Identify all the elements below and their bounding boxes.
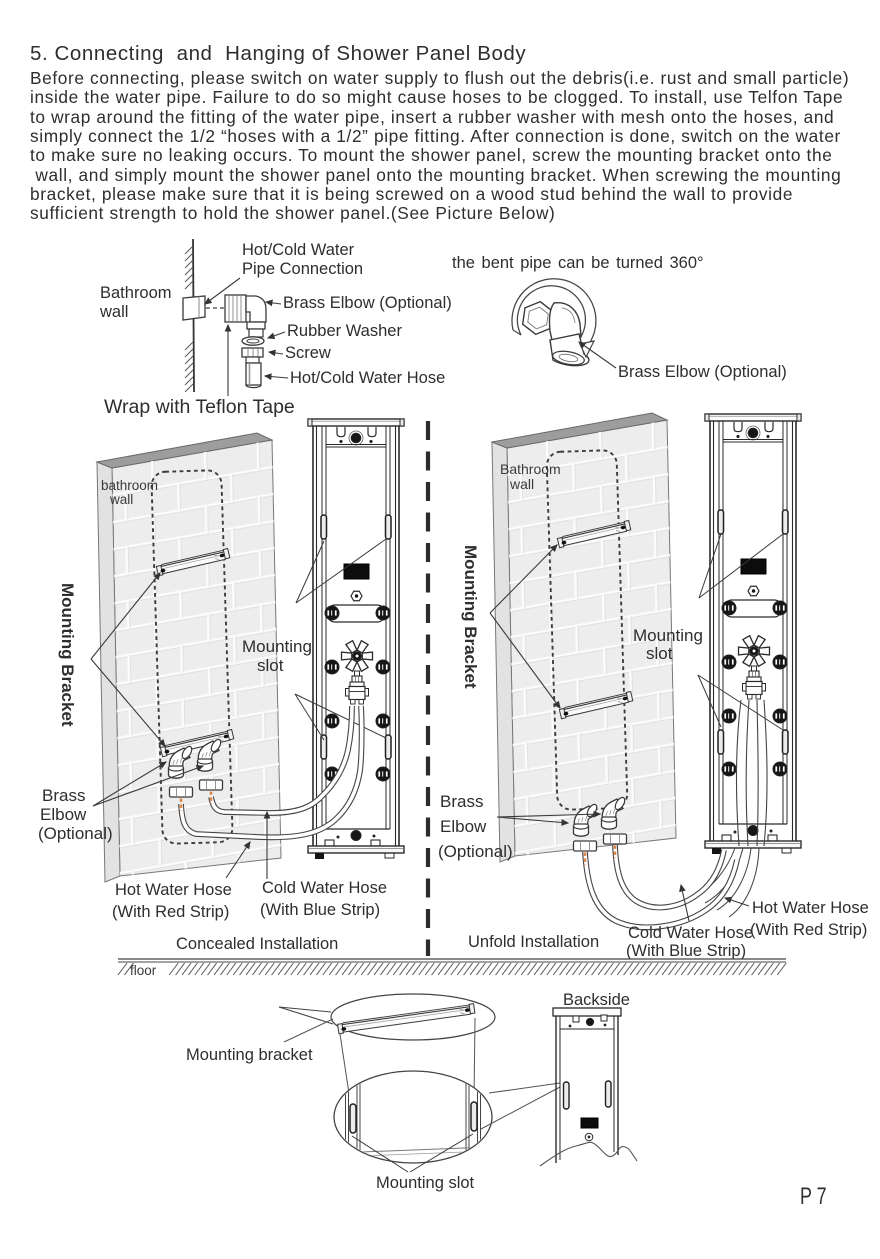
svg-text:(With Red Strip): (With Red Strip) — [112, 903, 229, 921]
svg-text:wall: wall — [109, 492, 133, 507]
svg-text:wall: wall — [99, 303, 128, 321]
svg-text:Unfold Installation: Unfold Installation — [468, 933, 599, 951]
svg-text:slot: slot — [257, 656, 284, 675]
svg-text:the bent pipe can be turn: the bent pipe can be turned 360° — [452, 254, 704, 272]
svg-text:(With Blue Strip): (With Blue Strip) — [626, 942, 746, 960]
svg-text:Backside: Backside — [563, 991, 630, 1009]
svg-text:slot: slot — [646, 644, 673, 663]
svg-text:Brass: Brass — [440, 792, 483, 811]
svg-text:(With Blue Strip): (With Blue Strip) — [260, 901, 380, 919]
svg-text:Brass: Brass — [42, 786, 85, 805]
svg-text:Rubber Washer: Rubber Washer — [287, 322, 402, 340]
svg-text:Concealed Installation: Concealed Installation — [176, 935, 338, 953]
svg-text:(Optional): (Optional) — [38, 824, 113, 843]
svg-text:Cold Water Hose: Cold Water Hose — [628, 924, 753, 942]
svg-text:Hot/Cold Water: Hot/Cold Water — [242, 241, 355, 259]
svg-text:Screw: Screw — [285, 344, 331, 362]
svg-text:Hot Water Hose: Hot Water Hose — [752, 899, 869, 917]
svg-text:Mounting: Mounting — [242, 637, 312, 656]
svg-text:Mounting bracket: Mounting bracket — [186, 1046, 313, 1064]
svg-text:P 7: P 7 — [800, 1182, 827, 1209]
svg-text:Mounting slot: Mounting slot — [376, 1174, 475, 1192]
svg-text:Hot/Cold Water Hose: Hot/Cold Water Hose — [290, 369, 445, 387]
svg-text:Mounting: Mounting — [633, 626, 703, 645]
svg-text:Bathroom: Bathroom — [100, 284, 172, 302]
svg-text:Brass Elbow (Optional): Brass Elbow (Optional) — [618, 363, 787, 381]
svg-text:Cold Water Hose: Cold Water Hose — [262, 879, 387, 897]
svg-text:wall: wall — [509, 476, 534, 492]
svg-text:Elbow: Elbow — [440, 817, 487, 836]
svg-text:Elbow: Elbow — [40, 805, 87, 824]
svg-text:Mounting Bracket: Mounting Bracket — [58, 583, 77, 727]
svg-text:(With Red Strip): (With Red Strip) — [750, 921, 867, 939]
svg-text:Mounting Bracket: Mounting Bracket — [461, 545, 480, 689]
svg-text:Hot Water Hose: Hot Water Hose — [115, 881, 232, 899]
svg-text:Wrap with Teflon Tape: Wrap with Teflon Tape — [104, 396, 295, 418]
svg-text:Pipe Connection: Pipe Connection — [242, 260, 363, 278]
svg-text:Brass Elbow (Optional): Brass Elbow (Optional) — [283, 294, 452, 312]
svg-text:floor: floor — [130, 963, 157, 978]
svg-text:Bathroom: Bathroom — [500, 461, 561, 477]
svg-text:bathroom: bathroom — [101, 478, 158, 493]
svg-text:(Optional): (Optional) — [438, 842, 513, 861]
